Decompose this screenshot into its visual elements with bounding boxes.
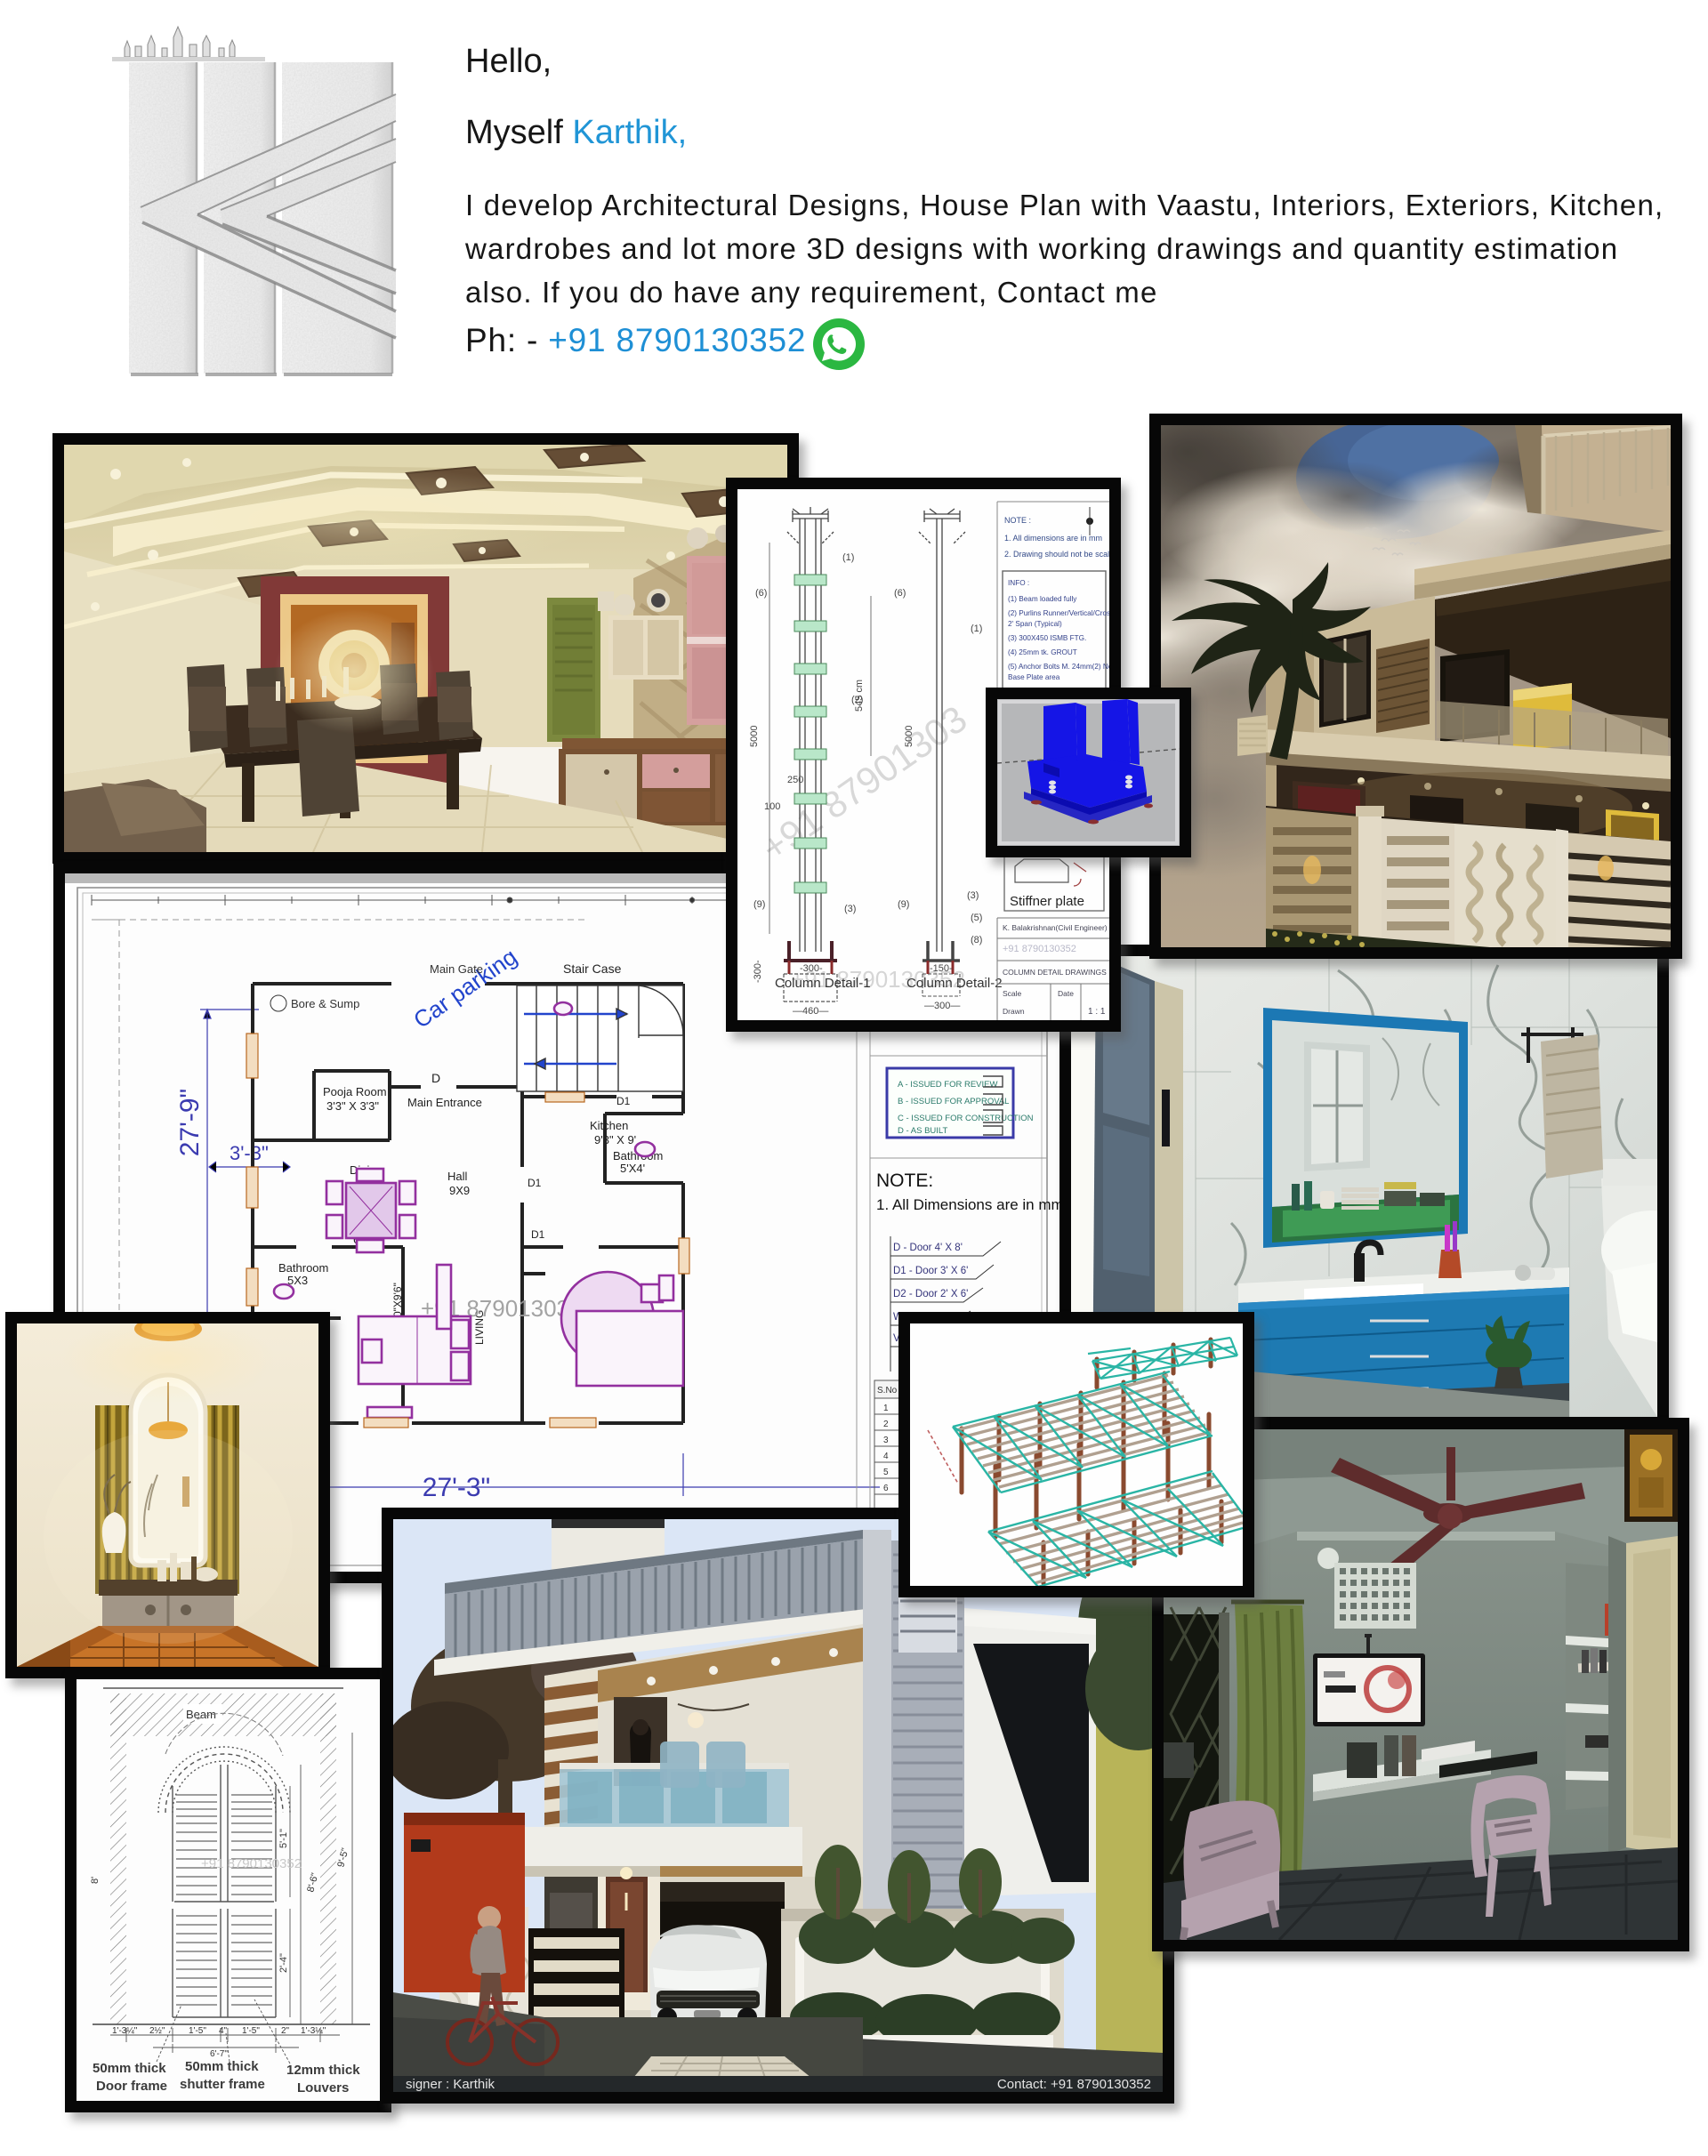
svg-text:250: 250 — [787, 775, 803, 785]
svg-text:(1) Beam loaded fully: (1) Beam loaded fully — [1008, 595, 1077, 603]
svg-text:Contact: +91 8790130352: Contact: +91 8790130352 — [997, 2077, 1151, 2092]
svg-text:(3): (3) — [967, 890, 979, 901]
svg-text:3'3" X 3'3": 3'3" X 3'3" — [326, 1099, 379, 1113]
svg-text:signer : Karthik: signer : Karthik — [406, 2077, 495, 2092]
svg-text:INFO :: INFO : — [1008, 579, 1029, 587]
svg-text:Column Detail-2: Column Detail-2 — [906, 976, 1003, 991]
svg-text:50mm thick: 50mm thick — [93, 2061, 166, 2076]
svg-text:(2) Purlins Runner/Vertical/Cr: (2) Purlins Runner/Vertical/Cross/Flat S… — [1008, 609, 1109, 617]
svg-text:Louvers: Louvers — [297, 2080, 349, 2096]
svg-text:5: 5 — [883, 1468, 889, 1477]
svg-text:Bathroom: Bathroom — [278, 1261, 328, 1275]
svg-text:D1 - Door 3' X 6': D1 - Door 3' X 6' — [893, 1266, 968, 1276]
svg-text:shutter frame: shutter frame — [180, 2077, 265, 2092]
svg-text:8': 8' — [90, 1877, 101, 1884]
svg-text:D1: D1 — [528, 1177, 542, 1189]
svg-text:5000: 5000 — [749, 726, 760, 747]
svg-text:(1): (1) — [842, 552, 854, 563]
svg-text:5'X4': 5'X4' — [620, 1162, 645, 1175]
svg-text:NOTE :: NOTE : — [1004, 516, 1031, 525]
svg-text:(4) 25mm tk. GROUT: (4) 25mm tk. GROUT — [1008, 648, 1077, 656]
svg-text:1. All Dimensions are in mm.: 1. All Dimensions are in mm. — [876, 1196, 1059, 1213]
svg-text:27'-9": 27'-9" — [175, 1089, 205, 1156]
svg-text:Date: Date — [1058, 989, 1074, 998]
svg-text:—300—: —300— — [924, 1001, 960, 1011]
svg-text:3'-3": 3'-3" — [230, 1142, 269, 1164]
svg-text:6: 6 — [883, 1484, 889, 1493]
svg-text:(1): (1) — [971, 623, 982, 634]
svg-text:50mm thick: 50mm thick — [185, 2059, 259, 2074]
svg-text:6'-7": 6'-7" — [210, 2049, 228, 2059]
svg-text:COLUMN DETAIL DRAWINGS: COLUMN DETAIL DRAWINGS — [1003, 968, 1107, 977]
svg-text:—460—: —460— — [793, 1006, 828, 1017]
svg-text:Pooja Room: Pooja Room — [323, 1085, 387, 1098]
svg-text:2'-4": 2'-4" — [278, 1953, 289, 1973]
svg-text:2": 2" — [281, 2026, 290, 2036]
svg-text:Beam: Beam — [186, 1708, 216, 1721]
svg-text:2' Span (Typical): 2' Span (Typical) — [1008, 620, 1062, 628]
svg-text:+91 8790130352: +91 8790130352 — [1003, 944, 1076, 954]
svg-text:D - Door 4' X 8': D - Door 4' X 8' — [893, 1243, 963, 1253]
svg-text:Stiffner plate: Stiffner plate — [1010, 894, 1084, 909]
svg-text:1'-3¼": 1'-3¼" — [301, 2025, 326, 2036]
svg-text:S.No: S.No — [877, 1386, 898, 1396]
svg-text:-300-: -300- — [800, 963, 823, 974]
svg-text:100: 100 — [764, 801, 780, 812]
svg-text:D - AS BUILT: D - AS BUILT — [898, 1126, 948, 1136]
svg-text:1: 1 — [883, 1404, 889, 1413]
svg-text:Base Plate area: Base Plate area — [1008, 673, 1060, 681]
svg-text:12mm thick: 12mm thick — [286, 2063, 360, 2078]
svg-text:(3): (3) — [844, 904, 856, 914]
svg-text:(8): (8) — [971, 935, 982, 945]
svg-text:(6): (6) — [755, 588, 767, 599]
svg-text:Hall: Hall — [447, 1170, 468, 1183]
svg-text:D1: D1 — [616, 1095, 631, 1107]
svg-text:(9): (9) — [898, 899, 909, 910]
svg-text:D2 - Door 2' X 6': D2 - Door 2' X 6' — [893, 1289, 968, 1299]
svg-text:Scale: Scale — [1003, 989, 1022, 998]
svg-text:Bore & Sump: Bore & Sump — [291, 997, 359, 1010]
svg-text:Kitchen: Kitchen — [590, 1119, 628, 1132]
svg-text:5'-1": 5'-1" — [278, 1829, 289, 1848]
svg-text:2. Drawing should not be scale: 2. Drawing should not be scaled — [1004, 550, 1109, 559]
svg-text:2½": 2½" — [149, 2026, 165, 2036]
svg-text:NOTE:: NOTE: — [876, 1171, 933, 1191]
svg-text:4: 4 — [883, 1452, 889, 1461]
svg-text:(5): (5) — [971, 913, 982, 923]
svg-text:9'3" X 9': 9'3" X 9' — [594, 1133, 636, 1146]
svg-text:1. All dimensions are in mm: 1. All dimensions are in mm — [1004, 534, 1102, 543]
svg-text:(6): (6) — [894, 588, 906, 599]
svg-text:3: 3 — [883, 1436, 889, 1445]
svg-text:1 : 1: 1 : 1 — [1088, 1007, 1106, 1017]
svg-text:(9): (9) — [753, 899, 765, 910]
svg-text:D: D — [431, 1071, 440, 1085]
svg-text:1'-5": 1'-5" — [189, 2026, 206, 2036]
svg-text:Door frame: Door frame — [96, 2079, 167, 2094]
svg-text:Drawn: Drawn — [1003, 1007, 1025, 1016]
svg-text:A - ISSUED FOR REVIEW: A - ISSUED FOR REVIEW — [898, 1080, 997, 1090]
svg-text:Stair Case: Stair Case — [563, 961, 622, 976]
svg-text:Column Detail-1: Column Detail-1 — [775, 976, 871, 991]
svg-text:-300-: -300- — [753, 960, 763, 983]
svg-text:(3) 300X450 ISMB FTG.: (3) 300X450 ISMB FTG. — [1008, 634, 1086, 642]
svg-text:+91 8790130352: +91 8790130352 — [201, 1856, 302, 1871]
svg-text:1'-5": 1'-5" — [242, 2026, 260, 2036]
svg-text:(2): (2) — [851, 695, 863, 705]
svg-text:9X9: 9X9 — [449, 1184, 470, 1197]
svg-text:1'-3¼": 1'-3¼" — [112, 2025, 138, 2036]
svg-text:-150-: -150- — [930, 963, 953, 974]
svg-text:5000: 5000 — [904, 726, 914, 747]
svg-text:27'-3": 27'-3" — [423, 1473, 490, 1502]
svg-text:(5) Anchor Bolts M. 24mm(2) No: (5) Anchor Bolts M. 24mm(2) Nos per — [1008, 663, 1109, 671]
svg-text:2: 2 — [883, 1420, 889, 1429]
svg-text:Main Entrance: Main Entrance — [407, 1096, 482, 1109]
svg-text:D1: D1 — [531, 1228, 545, 1241]
svg-text:C - ISSUED FOR CONSTRUCTION: C - ISSUED FOR CONSTRUCTION — [898, 1114, 1034, 1123]
svg-text:K. Balakrishnan(Civil Engineer: K. Balakrishnan(Civil Engineer) — [1003, 923, 1108, 932]
svg-text:Main Gate: Main Gate — [430, 962, 483, 976]
